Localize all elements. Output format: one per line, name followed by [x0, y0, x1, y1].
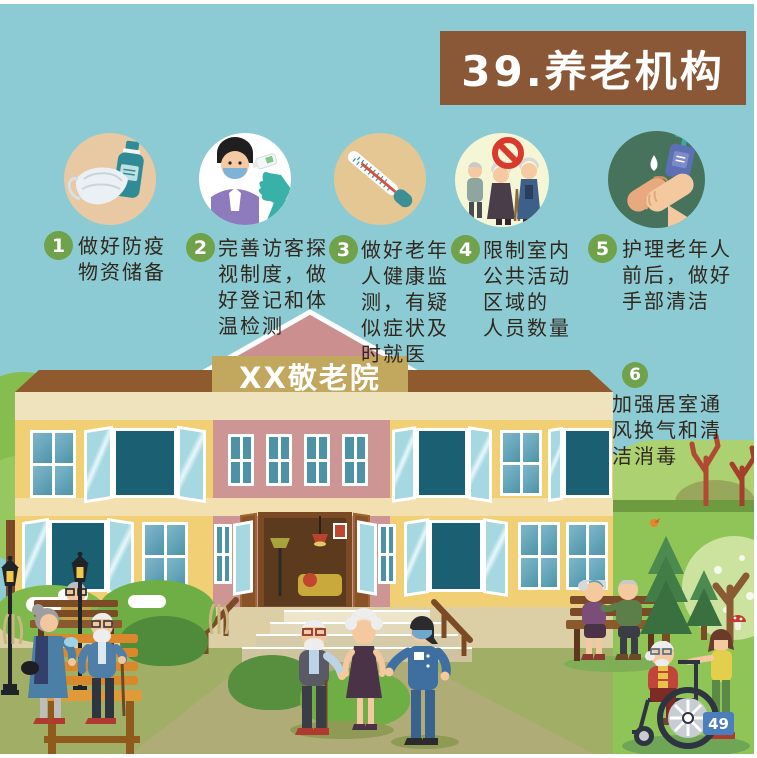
door-side-shutter	[233, 520, 253, 596]
elderly-couple-with-nurse	[282, 608, 472, 758]
window	[304, 434, 330, 486]
step-number: 1	[44, 231, 73, 260]
window	[518, 522, 560, 590]
edge-strip	[0, 0, 757, 4]
window	[342, 434, 368, 486]
step-text: 限制室内 公共活动 区域的 人员数量	[483, 237, 603, 341]
window	[378, 524, 396, 584]
window	[30, 430, 76, 498]
reed-tuft	[0, 608, 26, 644]
page-title: 39.养老机构	[440, 31, 746, 105]
infographic-poster: XX敬老院	[0, 0, 757, 758]
window	[266, 434, 292, 486]
window-open	[548, 428, 612, 498]
mask-and-sanitizer-icon	[64, 133, 156, 225]
wheelchair-group	[608, 622, 754, 758]
elderly-couple-standing	[14, 596, 140, 758]
step-number: 5	[588, 234, 617, 263]
bird-icon	[646, 517, 662, 529]
hand-washing-icon	[608, 131, 705, 228]
reed-tuft	[206, 598, 232, 634]
edge-strip	[0, 754, 757, 758]
page-number-badge: 49	[703, 712, 734, 735]
step-number: 4	[451, 235, 480, 264]
temperature-check-icon	[199, 133, 291, 225]
building-fascia	[15, 392, 613, 422]
door-side-shutter	[357, 520, 377, 596]
step-number: 6	[622, 362, 648, 388]
step-text: 护理老年人 前后，做好 手部清洁	[622, 236, 752, 314]
window-open	[404, 520, 508, 592]
window	[228, 434, 254, 486]
step-number: 2	[186, 233, 215, 262]
step-number: 3	[329, 235, 358, 264]
window	[214, 524, 232, 584]
door-interior-scene	[262, 516, 348, 608]
thermometer-icon	[334, 133, 426, 225]
window-open	[392, 428, 492, 498]
window-open	[84, 428, 206, 498]
no-crowd-icon	[455, 133, 549, 227]
window	[500, 430, 542, 496]
step-text: 加强居室通 风换气和清 洁消毒	[612, 391, 752, 469]
